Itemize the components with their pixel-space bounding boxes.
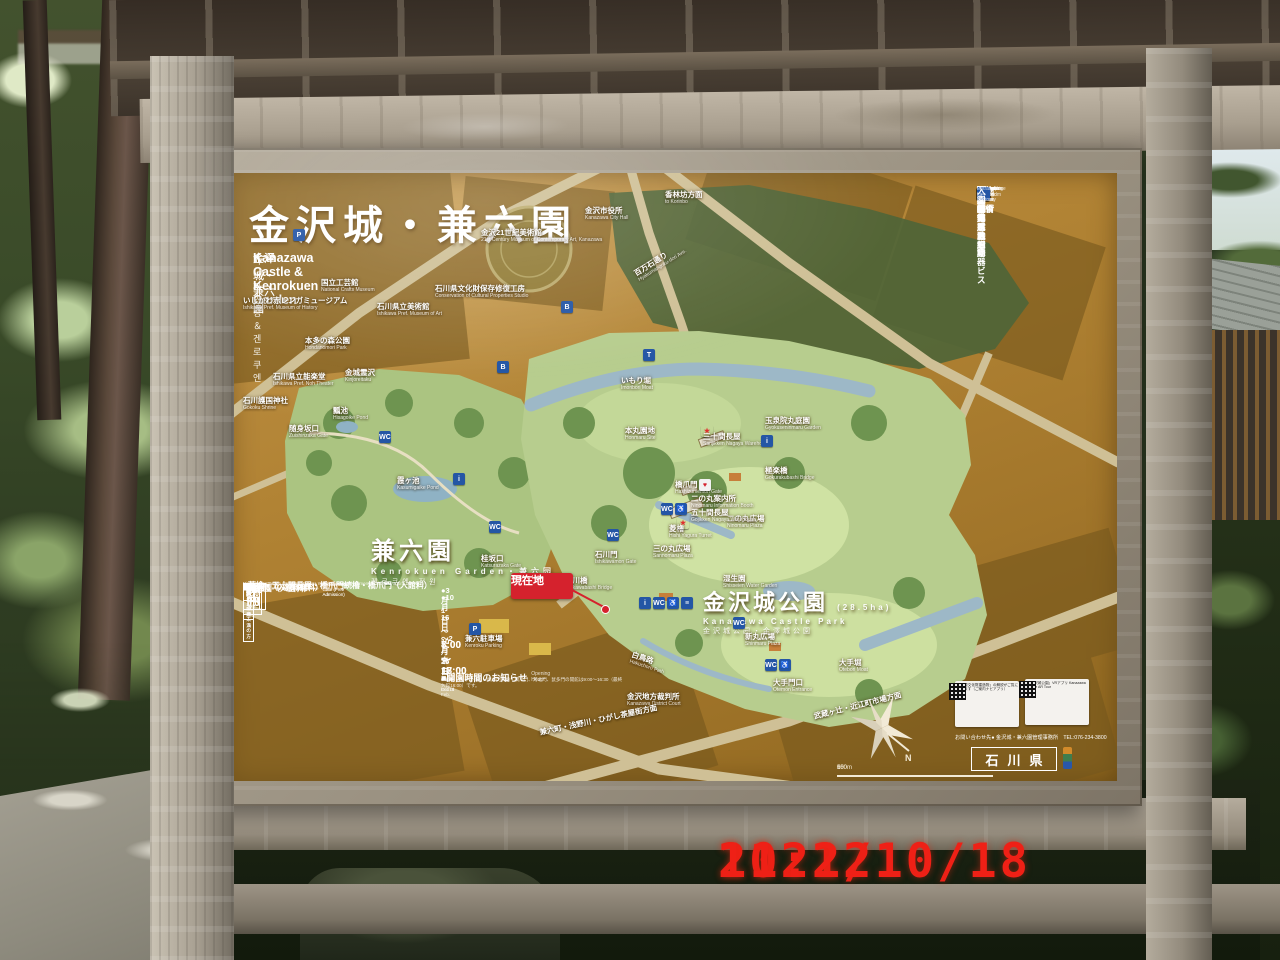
map-facility-icon: i	[453, 473, 465, 485]
map-label: いもり堀 Imoribori Moat	[621, 377, 653, 391]
map-label: 極楽橋 Gokurakubashi Bridge	[765, 467, 814, 481]
map-label: 新丸広場 Shinmaru Plaza	[745, 633, 780, 647]
map-label: 湿生園 Shisseien Water Garden	[723, 575, 777, 589]
map-label: 石川県立美術館 Ishikawa Pref. Museum of Art	[377, 303, 442, 317]
map-label: 金城霊沢 Kinjoreitaku	[345, 369, 375, 383]
map-label: 桂坂口 Katsurazaka Gate	[481, 555, 521, 569]
scale-bar: 050100150m	[837, 765, 993, 777]
you-are-here-badge: 現在地 You Are Here	[511, 573, 573, 599]
map-facility-icon: ♿	[779, 659, 791, 671]
map-facility-icon: WC	[607, 529, 619, 541]
photo-of-map-signboard: 金沢城・兼六園 Kanazawa Castle & Kenrokuen Gard…	[0, 0, 1280, 960]
map-facility-icon: B	[561, 301, 573, 313]
map-label: 香林坊方面 to Korinbo	[665, 191, 703, 205]
map-label: 石川護国神社 Gokoku Shrine	[243, 397, 288, 411]
map-facility-icon: ♿	[675, 503, 687, 515]
map-facility-icon: i	[639, 597, 651, 609]
map-label: 国立工芸館 National Crafts Museum	[321, 279, 375, 293]
map-label: 兼六駐車場 Kenroku Parking	[465, 635, 503, 649]
map-label: 瓢池 Hisagoike Pond	[333, 407, 368, 421]
map-signboard: 金沢城・兼六園 Kanazawa Castle & Kenrokuen Gard…	[229, 173, 1117, 781]
map-label: 本多の森公園 Hondanomori Park	[305, 337, 350, 351]
map-label: 五十間長屋 Gojikken Nagaya Warehouse	[691, 509, 756, 523]
map-facility-icon: WC	[733, 617, 745, 629]
qr-code	[949, 683, 966, 700]
hours-note: ※菱櫓・五十間長屋・橋爪門続櫓・橋爪門、河北門、鼠多門の開館は9:00～16:3…	[441, 677, 623, 689]
map-facility-icon: WC	[489, 521, 501, 533]
map-facility-icon: ★	[701, 425, 713, 437]
contact-info: お問い合わせ先● 金沢城・兼六園管理事務所 TEL:076-234-3800	[955, 735, 1115, 742]
map-facility-icon: T	[643, 349, 655, 361]
prefecture-box: 石川県	[971, 747, 1057, 771]
map-label: 菱櫓 Hishi Yagura Turret	[669, 525, 712, 539]
map-label: 金沢21世紀美術館 21st Century Museum of Contemp…	[481, 229, 602, 243]
scale-tick: 150m	[837, 765, 852, 771]
map-label: 霞ヶ池 Kasumigaike Pond	[397, 477, 439, 491]
map-facility-icon: i	[761, 435, 773, 447]
map-facility-icon: ♿	[667, 597, 679, 609]
map-label-castle-park: 金沢城公園 (28.5ha) Kanazawa Castle Park 金沢城公…	[703, 585, 891, 636]
map-label: 三の丸広場 Sannomaru Plaza	[653, 545, 693, 559]
map-facility-icon: ♥	[699, 479, 711, 491]
you-are-here-dot	[601, 605, 610, 614]
map-label: 大手堀 Otebori Moat	[839, 659, 868, 673]
map-label: いしかわ赤レンガミュージアム Ishikawa Pref. Museum of …	[243, 297, 347, 311]
kiosk-post-left	[150, 56, 234, 960]
map-label: 玉泉院丸庭園 Gyokuseninmaru Garden	[765, 417, 821, 431]
map-label: 石川門 Ishikawamon Gate	[595, 551, 636, 565]
building-lattice-wall	[1200, 330, 1280, 540]
map-facility-icon: P	[293, 229, 305, 241]
map-facility-icon: WC	[765, 659, 777, 671]
map-facility-icon: WC	[661, 503, 673, 515]
prefecture-logo	[1063, 747, 1072, 769]
map-label: 大手門口 Otemon Entrance	[773, 679, 812, 693]
map-facility-icon: B	[497, 361, 509, 373]
kiosk-post-right	[1146, 48, 1212, 960]
compass-north: N	[905, 753, 912, 763]
qr-code	[1019, 681, 1036, 698]
map-label: 石川県立能楽堂 Ishikawa Pref. Noh Theater	[273, 373, 334, 387]
map-facility-icon: WC	[653, 597, 665, 609]
map-label: 本丸園地 Honmaru Site	[625, 427, 656, 441]
qr-card-vr-app: 「金沢城公園」VRアプリ Kanazawa Castle AR Tour	[1025, 679, 1089, 725]
map-facility-icon: ≡	[681, 597, 693, 609]
compass-rose: N	[847, 693, 917, 763]
map-facility-icon: ★	[677, 517, 689, 529]
datestamp-time: 11:22	[718, 834, 874, 889]
map-label: 石川県文化財保存修復工房 Conservation of Cultural Pr…	[435, 285, 528, 299]
map-label: 金沢市役所 Kanazawa City Hall	[585, 207, 628, 221]
map-facility-icon: P	[469, 623, 481, 635]
kiosk-rail-lower	[150, 884, 1280, 934]
map-facility-icon: WC	[379, 431, 391, 443]
map-label: 随身坂口 Zuishinzaka Gate	[289, 425, 328, 439]
qr-card-guide-app: 「重要文化財建造物」の解説がご覧になれます（ご案内ナビアプリ）	[955, 681, 1019, 727]
